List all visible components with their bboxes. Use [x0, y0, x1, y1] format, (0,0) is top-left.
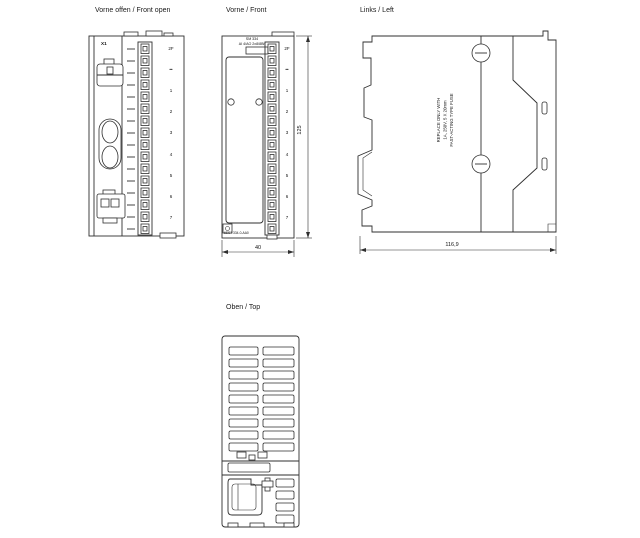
- top-tab-small: [164, 33, 173, 36]
- view-front-open: X1: [89, 31, 184, 238]
- module-desc-text: AI 4/AO 2x8/8Bit: [239, 42, 266, 46]
- module-outline: [222, 36, 294, 238]
- top-tab: [272, 32, 294, 36]
- side-slot-bottom: [542, 158, 547, 170]
- terminal-label: 2F: [284, 46, 290, 51]
- width-dim-label: 40: [255, 245, 261, 251]
- terminal-label: ••: [285, 67, 289, 72]
- height-dim-label: 125: [297, 125, 303, 134]
- screw-top: [472, 44, 490, 62]
- order-number-text: 6ES7 334-0-AA0: [224, 231, 249, 235]
- terminal-label: 2F: [168, 46, 174, 51]
- top-tab: [146, 31, 162, 36]
- terminal-label: 6: [170, 194, 173, 199]
- connector-x1-label: X1: [101, 41, 107, 46]
- fuse-warning-text: REPLACE ONLY WITH 1A, 250V, 5 X 20mm FAS…: [436, 93, 454, 146]
- terminal-label: 5: [286, 173, 289, 178]
- bottom-tab: [160, 233, 176, 238]
- front-door: [226, 57, 263, 223]
- side-profile-outline: [358, 31, 556, 232]
- terminal-label: 6: [286, 194, 289, 199]
- dimension-drawing-canvas: Vorne offen / Front open Vorne / Front L…: [0, 0, 640, 538]
- terminal-label: 5: [170, 173, 173, 178]
- side-slot-top: [542, 102, 547, 114]
- rail-clip-cross: [262, 478, 273, 491]
- terminal-strip: [127, 42, 152, 235]
- view-left: REPLACE ONLY WITH 1A, 250V, 5 X 20mm FAS…: [358, 31, 556, 254]
- terminal-numbers: 2F •• 1 2 3 4 5 6 7: [168, 46, 174, 220]
- technical-drawing-svg: X1: [0, 0, 640, 538]
- view-top: [222, 336, 299, 527]
- rail-panel-edge: [513, 36, 537, 232]
- fuse-holder: [99, 119, 121, 169]
- terminal-label: 4: [286, 152, 289, 157]
- fuse-note-line: FAST-ACTING TYPE FUSE: [449, 93, 454, 146]
- terminal-strip: [265, 42, 279, 239]
- screw-bottom: [472, 155, 490, 173]
- handle-detail: [363, 152, 372, 196]
- fuse-note-line: 1A, 250V, 5 X 20mm: [443, 100, 448, 140]
- latch: [97, 59, 123, 86]
- wide-slot: [228, 463, 270, 472]
- width-dimension: 40: [222, 240, 294, 257]
- terminal-label: 3: [286, 130, 289, 135]
- height-dimension: 125: [296, 36, 312, 238]
- terminal-label: 1: [170, 88, 173, 93]
- door-screw-right: [256, 99, 262, 105]
- bus-connector: [228, 479, 262, 515]
- terminal-label: 3: [170, 130, 173, 135]
- fuse-note-line: REPLACE ONLY WITH: [436, 98, 441, 143]
- terminal-label: 2: [286, 109, 289, 114]
- top-clip: [124, 32, 138, 36]
- terminal-label: 7: [286, 215, 289, 220]
- terminal-numbers: 2F •• 1 2 3 4 5 6 7: [284, 46, 290, 220]
- terminal-label: 7: [170, 215, 173, 220]
- terminal-label: 1: [286, 88, 289, 93]
- bottom-right-step: [548, 224, 556, 232]
- module-type-text: SM 334: [246, 37, 258, 41]
- bottom-connector: [97, 190, 125, 223]
- depth-dim-label: 116,9: [445, 242, 458, 248]
- rear-slots: [276, 479, 294, 523]
- terminal-label: 4: [170, 152, 173, 157]
- bottom-feet: [228, 523, 294, 527]
- divider-band: [222, 452, 299, 461]
- terminal-label: 2: [170, 109, 173, 114]
- vent-slots: [229, 347, 294, 451]
- depth-dimension: 116,9: [360, 236, 556, 254]
- view-front: SM 334 AI 4/AO 2x8/8Bit 6ES7 334-0-AA0: [222, 32, 312, 257]
- door-screw-left: [228, 99, 234, 105]
- terminal-label: ••: [169, 67, 173, 72]
